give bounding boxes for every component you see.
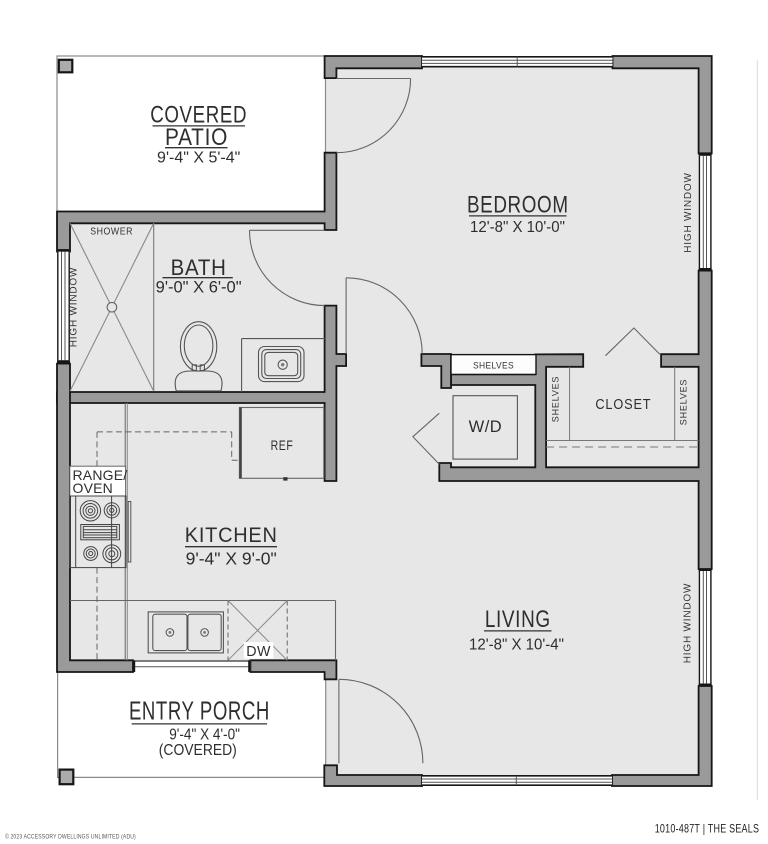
svg-text:12'-8" X 10'-4": 12'-8" X 10'-4" [469, 636, 564, 654]
svg-text:ENTRY PORCH: ENTRY PORCH [129, 697, 270, 726]
svg-text:SHELVES: SHELVES [473, 360, 514, 370]
svg-text:SHELVES: SHELVES [551, 376, 561, 422]
svg-text:CLOSET: CLOSET [595, 395, 651, 412]
svg-text:12'-8" X 10'-0": 12'-8" X 10'-0" [470, 218, 565, 236]
svg-text:HIGH WINDOW: HIGH WINDOW [683, 583, 694, 663]
svg-text:SHELVES: SHELVES [679, 379, 689, 425]
svg-text:BATH: BATH [171, 255, 227, 280]
svg-text:SHOWER: SHOWER [90, 225, 133, 237]
svg-text:9'-0" X 6'-0": 9'-0" X 6'-0" [156, 278, 242, 296]
svg-text:(COVERED): (COVERED) [159, 741, 237, 759]
svg-text:HIGH WINDOW: HIGH WINDOW [683, 172, 694, 252]
svg-text:© 2023 ACCESSORY DWELLINGS UNL: © 2023 ACCESSORY DWELLINGS UNLIMITED (AD… [5, 833, 136, 841]
svg-text:KITCHEN: KITCHEN [185, 523, 278, 547]
svg-text:HIGH WINDOW: HIGH WINDOW [69, 267, 80, 347]
svg-text:BEDROOM: BEDROOM [467, 190, 569, 218]
svg-text:REF: REF [271, 438, 294, 454]
svg-text:OVEN: OVEN [73, 480, 113, 496]
svg-text:LIVING: LIVING [485, 605, 551, 633]
svg-text:W/D: W/D [469, 418, 503, 436]
svg-text:PATIO: PATIO [165, 123, 228, 150]
svg-text:9'-4" X 9'-0": 9'-4" X 9'-0" [186, 549, 277, 569]
svg-text:9'-4" X 5'-4": 9'-4" X 5'-4" [157, 149, 240, 166]
svg-text:DW: DW [246, 644, 271, 660]
svg-text:1010-487T | THE SEALS: 1010-487T | THE SEALS [655, 824, 759, 836]
